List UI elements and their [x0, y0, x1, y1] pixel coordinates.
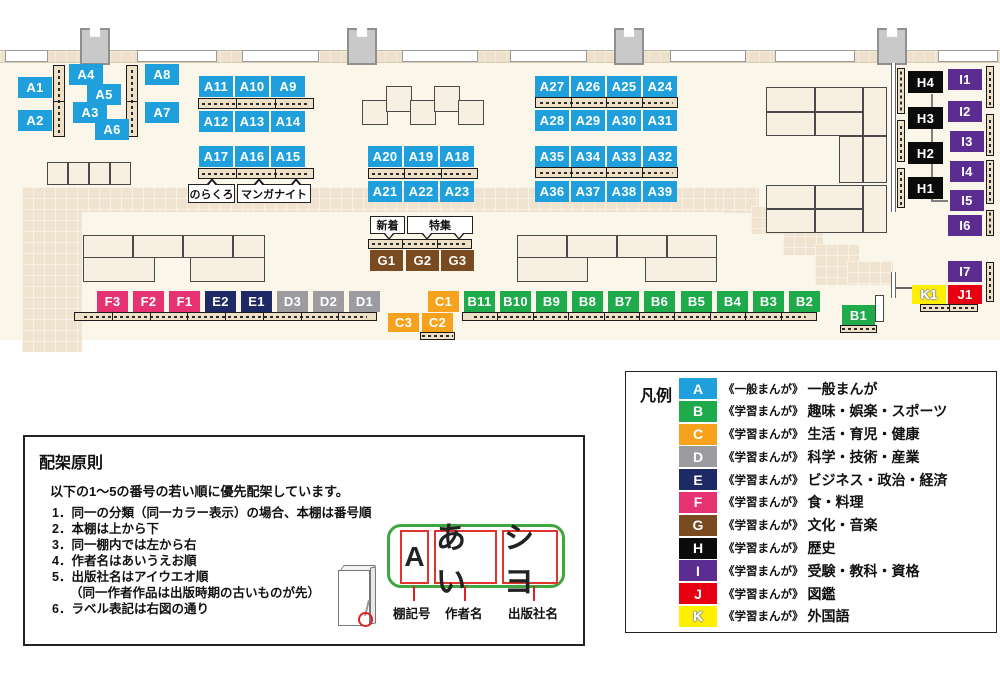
legend-type: 《学習まんが》 [723, 472, 804, 488]
legend-category: 歴史 [808, 538, 836, 558]
shelf-strip [986, 66, 994, 108]
shelf-B10: B10 [500, 291, 531, 312]
shelf-I1: I1 [948, 69, 982, 90]
legend-chip-A: A [679, 378, 717, 399]
callout-manga-night: マンガナイト [237, 184, 311, 203]
shelf-A21: A21 [368, 181, 402, 202]
shelf-E1: E1 [241, 291, 272, 312]
shelf-block [839, 136, 863, 183]
table-block [410, 100, 436, 125]
legend-chip-J: J [679, 583, 717, 604]
shelf-A10: A10 [235, 76, 269, 97]
shelf-A37: A37 [571, 181, 605, 202]
legend-chip-D: D [679, 446, 717, 467]
legend-category: ビジネス・政治・経済 [808, 470, 948, 490]
window [5, 50, 48, 62]
shelf-B6: B6 [644, 291, 675, 312]
shelf-A19: A19 [404, 146, 438, 167]
shelf-block [47, 162, 68, 185]
caption-line [413, 586, 415, 601]
callout-label: マンガナイト [241, 186, 307, 202]
shelf-I2: I2 [948, 101, 982, 122]
window [242, 50, 319, 62]
principles-title: 配架原則 [39, 449, 103, 473]
legend-row-A: A《一般まんが》一般まんが [679, 378, 948, 399]
shelf-A20: A20 [368, 146, 402, 167]
callout-tail [383, 233, 395, 240]
callout-tail [253, 178, 265, 185]
shelf-A24: A24 [643, 76, 677, 97]
legend-type: 《学習まんが》 [723, 517, 804, 533]
shelf-A27: A27 [535, 76, 569, 97]
callout-label: 新着 [377, 217, 399, 233]
shelf-strip [368, 168, 478, 179]
legend-rows: A《一般まんが》一般まんが B《学習まんが》趣味・娯楽・スポーツ C《学習まんが… [679, 378, 948, 629]
shelf-B9: B9 [536, 291, 567, 312]
caption-shelf-code: 棚記号 [393, 603, 431, 622]
shelf-strip [535, 167, 678, 178]
legend-chip-I: I [679, 560, 717, 581]
shelf-block [815, 185, 863, 209]
shelf-block [863, 185, 887, 233]
callout-label: 特集 [429, 217, 451, 233]
shelf-A11: A11 [199, 76, 233, 97]
shelf-strip [986, 160, 994, 204]
shelf-block [815, 87, 863, 112]
callout-label: のらくろ [190, 186, 234, 202]
principle-item: 2．本棚は上から下 [52, 521, 371, 537]
shelf-A22: A22 [404, 181, 438, 202]
shelf-C1: C1 [428, 291, 459, 312]
shelf-A9: A9 [271, 76, 305, 97]
shelf-C2: C2 [422, 313, 453, 332]
shelf-block [183, 235, 233, 258]
shelf-G3: G3 [441, 250, 474, 271]
legend-type: 《学習まんが》 [723, 449, 804, 465]
pillar [347, 28, 377, 65]
shelf-J1: J1 [948, 285, 982, 304]
shelf-strip [74, 312, 377, 321]
shelf-A32: A32 [643, 146, 677, 167]
shelf-A29: A29 [571, 110, 605, 131]
shelf-A13: A13 [235, 111, 269, 132]
legend-category: 一般まんが [808, 379, 878, 399]
label-publisher: シヨ [502, 530, 558, 584]
legend-category: 食・料理 [808, 492, 864, 512]
legend-row-K: K《学習まんが》外国語 [679, 606, 948, 627]
shelf-block [863, 136, 887, 183]
shelf-D3: D3 [277, 291, 308, 312]
shelf-E2: E2 [205, 291, 236, 312]
callout-tail [453, 233, 465, 240]
legend-row-I: I《学習まんが》受験・教科・資格 [679, 560, 948, 581]
shelf-block [110, 162, 131, 185]
caption-line [464, 586, 466, 601]
shelf-B4: B4 [717, 291, 748, 312]
shelf-A23: A23 [440, 181, 474, 202]
legend-type: 《学習まんが》 [723, 586, 804, 602]
legend-panel: 凡例 A《一般まんが》一般まんが B《学習まんが》趣味・娯楽・スポーツ C《学習… [625, 371, 997, 633]
shelf-block [766, 87, 815, 112]
table-block [386, 86, 412, 112]
shelf-B8: B8 [572, 291, 603, 312]
legend-chip-C: C [679, 424, 717, 445]
shelf-A26: A26 [571, 76, 605, 97]
shelf-A15: A15 [271, 146, 305, 167]
table-block [362, 100, 388, 125]
shelf-strip [986, 114, 994, 156]
shelf-block [766, 209, 815, 233]
shelf-I6: I6 [948, 215, 982, 236]
shelf-F2: F2 [133, 291, 164, 312]
label-author: あい [434, 530, 497, 584]
walkway-left [22, 187, 82, 352]
shelf-D2: D2 [313, 291, 344, 312]
pillar [614, 28, 644, 65]
shelf-block [645, 257, 717, 282]
shelf-block [766, 185, 815, 209]
window [938, 50, 998, 62]
legend-category: 受験・教科・資格 [808, 561, 920, 581]
legend-category: 生活・育児・健康 [808, 424, 920, 444]
shelf-C3: C3 [388, 313, 419, 332]
shelf-F1: F1 [169, 291, 200, 312]
legend-type: 《学習まんが》 [723, 563, 804, 579]
legend-category: 外国語 [808, 606, 850, 626]
window [775, 50, 855, 62]
principle-item: 1．同一の分類（同一カラー表示）の場合、本棚は番号順 [52, 505, 371, 521]
shelf-block [83, 235, 133, 258]
shelf-strip [462, 312, 817, 321]
legend-chip-G: G [679, 515, 717, 536]
shelf-B1: B1 [842, 305, 875, 325]
shelf-F3: F3 [97, 291, 128, 312]
pillar [80, 28, 110, 65]
shelf-A33: A33 [607, 146, 641, 167]
floor-map-page: A1 A2 A4 A5 A3 A6 A8 A7 A11 A10 A9 A12 A… [0, 0, 1000, 700]
principle-item: 3．同一棚内では左から右 [52, 537, 371, 553]
shelf-strip [420, 332, 455, 340]
legend-category: 図鑑 [808, 584, 836, 604]
shelf-block [233, 235, 265, 258]
wall [891, 272, 896, 298]
shelf-A2: A2 [18, 110, 52, 131]
shelf-B5: B5 [681, 291, 712, 312]
shelf-I7: I7 [948, 261, 982, 282]
shelf-A39: A39 [643, 181, 677, 202]
legend-type: 《学習まんが》 [723, 540, 804, 556]
shelf-strip [897, 168, 905, 208]
legend-type: 《学習まんが》 [723, 426, 804, 442]
shelf-H1: H1 [908, 177, 943, 199]
shelf-strip [840, 325, 877, 333]
shelf-H3: H3 [908, 107, 943, 129]
legend-row-E: E《学習まんが》ビジネス・政治・経済 [679, 469, 948, 490]
shelf-block [863, 87, 887, 136]
legend-category: 科学・技術・産業 [808, 447, 920, 467]
shelf-G1: G1 [370, 250, 403, 271]
principle-item: 6．ラベル表記は右図の通り [52, 601, 371, 617]
shelf-strip [986, 262, 994, 302]
shelf-block [815, 209, 863, 233]
callout-norakuro: のらくろ [188, 184, 235, 203]
legend-type: 《学習まんが》 [723, 494, 804, 510]
shelf-B7: B7 [608, 291, 639, 312]
shelf-block [83, 257, 155, 282]
legend-row-B: B《学習まんが》趣味・娯楽・スポーツ [679, 401, 948, 422]
walkway-step [847, 261, 893, 285]
shelf-strip [198, 98, 314, 109]
shelf-A18: A18 [440, 146, 474, 167]
shelf-A7: A7 [145, 102, 179, 123]
guide-line [931, 200, 948, 202]
shelf-strip [368, 239, 472, 249]
shelf-strip [920, 304, 978, 312]
caption-line [533, 586, 535, 601]
shelf-I5: I5 [950, 190, 984, 211]
caption-publisher: 出版社名 [508, 603, 558, 622]
shelf-block [567, 235, 617, 258]
legend-type: 《学習まんが》 [723, 403, 804, 419]
shelf-A38: A38 [607, 181, 641, 202]
shelf-A31: A31 [643, 110, 677, 131]
shelf-H4: H4 [908, 71, 943, 93]
shelf-block [89, 162, 110, 185]
shelf-strip [986, 210, 994, 236]
legend-chip-K: K [679, 606, 717, 627]
shelf-block [766, 112, 815, 136]
shelf-B11: B11 [464, 291, 495, 312]
legend-title: 凡例 [640, 382, 672, 406]
shelf-A4: A4 [69, 64, 103, 85]
legend-row-H: H《学習まんが》歴史 [679, 538, 948, 559]
book-illustration [332, 562, 380, 630]
shelf-A25: A25 [607, 76, 641, 97]
shelf-block [68, 162, 89, 185]
callout-tail [206, 178, 218, 185]
shelf-A35: A35 [535, 146, 569, 167]
shelf-G2: G2 [406, 250, 439, 271]
shelf-D1: D1 [349, 291, 380, 312]
callout-tail [290, 178, 302, 185]
wall [891, 63, 896, 212]
callout-new-arrival: 新着 [370, 216, 405, 234]
legend-row-D: D《学習まんが》科学・技術・産業 [679, 446, 948, 467]
legend-type: 《一般まんが》 [723, 381, 804, 397]
shelf-A1: A1 [18, 77, 52, 98]
shelf-block [617, 235, 667, 258]
shelf-block [815, 112, 863, 136]
shelf-strip [897, 120, 905, 162]
legend-category: 趣味・娯楽・スポーツ [808, 401, 948, 421]
window [137, 50, 217, 62]
window [402, 50, 478, 62]
table-block [434, 86, 460, 112]
wall-stub [875, 295, 884, 322]
principles-list: 1．同一の分類（同一カラー表示）の場合、本棚は番号順 2．本棚は上から下 3．同… [52, 505, 371, 617]
legend-category: 文化・音楽 [808, 515, 878, 535]
principle-item-note: （同一作者作品は出版時期の古いものが先） [52, 585, 371, 601]
label-highlight-circle [358, 612, 373, 627]
principle-item: 4．作者名はあいうえお順 [52, 553, 371, 569]
legend-type: 《学習まんが》 [723, 608, 804, 624]
shelf-I4: I4 [950, 161, 984, 182]
shelf-block [517, 257, 588, 282]
legend-row-C: C《学習まんが》生活・育児・健康 [679, 424, 948, 445]
window [510, 50, 587, 62]
shelf-A8: A8 [145, 64, 179, 85]
shelf-A28: A28 [535, 110, 569, 131]
label-shelf-code: A [400, 530, 429, 584]
legend-row-F: F《学習まんが》食・料理 [679, 492, 948, 513]
shelf-A17: A17 [199, 146, 233, 167]
shelf-A12: A12 [199, 111, 233, 132]
shelf-A16: A16 [235, 146, 269, 167]
shelf-B2: B2 [789, 291, 820, 312]
shelf-H2: H2 [908, 142, 943, 164]
legend-row-G: G《学習まんが》文化・音楽 [679, 515, 948, 536]
shelf-block [517, 235, 567, 258]
caption-author: 作者名 [445, 603, 483, 622]
pillar [877, 28, 907, 65]
table-block [458, 100, 484, 125]
shelf-A34: A34 [571, 146, 605, 167]
shelf-B3: B3 [753, 291, 784, 312]
shelf-strip [53, 65, 65, 137]
shelf-block [133, 235, 183, 258]
legend-chip-F: F [679, 492, 717, 513]
callout-tail [421, 233, 433, 240]
legend-row-J: J《学習まんが》図鑑 [679, 583, 948, 604]
principle-item: 5．出版社名はアイウエオ順 [52, 569, 371, 585]
legend-chip-B: B [679, 401, 717, 422]
shelf-block [667, 235, 717, 258]
shelf-A6: A6 [95, 119, 129, 140]
shelf-A30: A30 [607, 110, 641, 131]
shelf-I3: I3 [950, 131, 984, 152]
shelf-block [190, 257, 265, 282]
shelf-strip [535, 97, 678, 108]
window [670, 50, 746, 62]
callout-feature: 特集 [407, 216, 473, 234]
legend-chip-H: H [679, 538, 717, 559]
shelf-K1: K1 [912, 285, 946, 304]
shelf-A36: A36 [535, 181, 569, 202]
shelf-A14: A14 [271, 111, 305, 132]
shelf-strip [897, 68, 905, 114]
principles-intro: 以下の1～5の番号の若い順に優先配架しています。 [50, 481, 349, 500]
legend-chip-E: E [679, 469, 717, 490]
